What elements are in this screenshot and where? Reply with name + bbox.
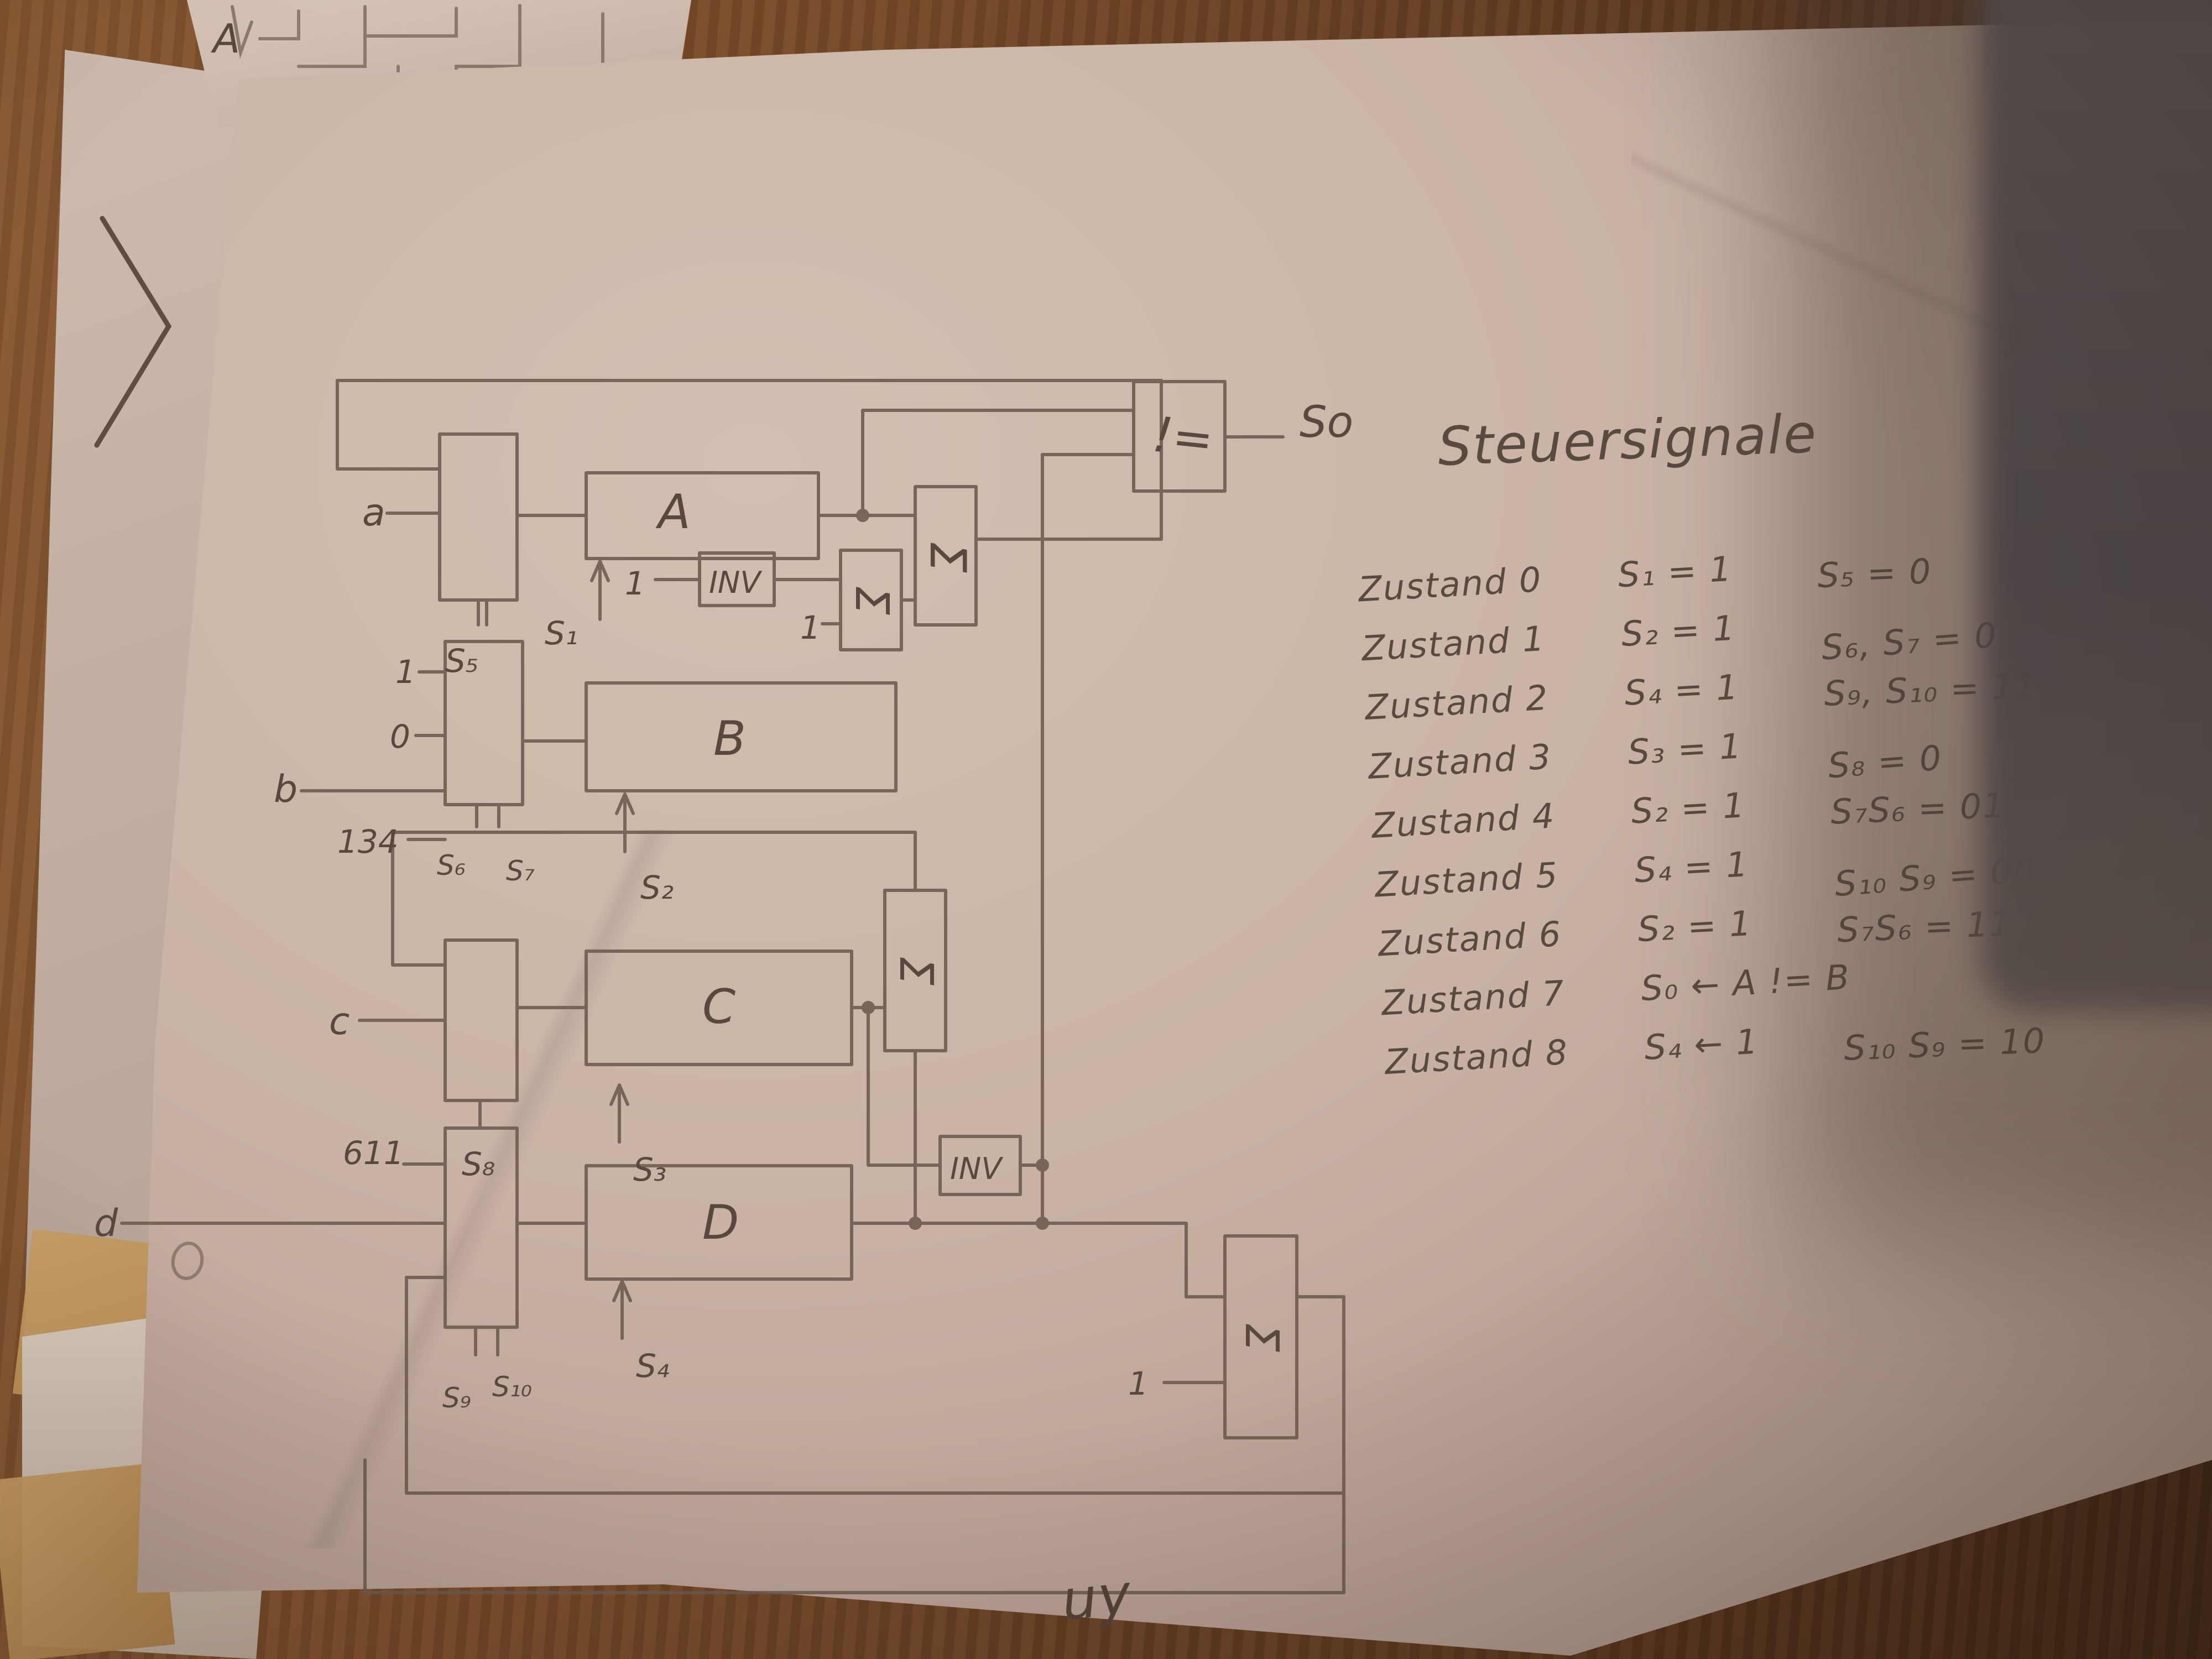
input-d-label: d	[94, 1202, 118, 1245]
wire-d-feedback-input	[406, 1277, 445, 1493]
select-s8-label: S₈	[462, 1145, 495, 1183]
wire-a-feedback-loop	[337, 380, 1161, 539]
wire-regd-out	[852, 1223, 1225, 1297]
constant-611-label: 611	[343, 1134, 404, 1172]
page-title: Steuersignale	[1437, 403, 1818, 478]
register-c-label: C	[702, 979, 735, 1035]
input-a-label: a	[362, 491, 385, 535]
adder-mid-sigma: Σ	[845, 586, 899, 615]
wire-a-to-comparator	[863, 410, 1134, 515]
mux-c-box	[445, 940, 517, 1100]
mux-b-select-ticks	[477, 805, 499, 827]
adder-bottom-sigma: Σ	[1235, 1323, 1289, 1352]
load-arrow-d	[614, 1281, 630, 1338]
bottom-edge-scribble: uy	[1058, 1562, 1135, 1634]
constant-1-label: 1	[800, 609, 821, 646]
inverter-2-label: INV	[950, 1151, 1004, 1186]
wire-to-inv2	[868, 1008, 940, 1165]
mux-d-input-wires	[122, 1164, 445, 1223]
constant-1-label: 1	[625, 565, 645, 602]
select-s10-label: S₁₀	[492, 1371, 532, 1403]
junction-dot	[910, 1218, 920, 1228]
register-a-label: A	[655, 484, 691, 540]
register-d-label: D	[702, 1195, 739, 1250]
mux-d-select-ticks	[476, 1327, 498, 1355]
adder-top-sigma: Σ	[919, 541, 977, 573]
load-s3-label: S₃	[633, 1151, 666, 1188]
constant-134-label: 134	[337, 823, 399, 860]
load-s2-label: S₂	[640, 869, 674, 906]
comparator-label: !=	[1150, 406, 1216, 469]
dark-object-shadow-top-right	[1980, 0, 2212, 1012]
junction-dot	[1037, 1218, 1047, 1228]
constant-1-label: 1	[395, 653, 416, 691]
load-arrow-c	[611, 1085, 628, 1142]
select-s9-label: S₉	[442, 1382, 471, 1414]
load-arrow-a	[592, 561, 608, 619]
junction-dot	[1037, 1160, 1047, 1170]
wire-outer-bottom-loop	[365, 1460, 1344, 1593]
inverter-1-label: INV	[709, 565, 763, 600]
photo-of-hand-drawn-schematic: A	[0, 0, 2212, 1659]
load-s1-label: S₁	[545, 614, 578, 652]
output-so-label: So	[1300, 398, 1353, 447]
mux-a-select-ticks	[478, 600, 487, 625]
register-a-box	[586, 473, 818, 559]
register-b-label: B	[713, 711, 746, 766]
select-s6-label: S₆	[437, 849, 466, 881]
mux-b-input-wires	[301, 672, 445, 839]
load-s4-label: S₄	[636, 1347, 669, 1385]
input-b-label: b	[274, 768, 298, 811]
datapath-schematic: a S₅ A S₁ 1 INV 1 Σ Σ != So 1 0 b 134 S₆…	[0, 0, 1493, 1659]
select-s7-label: S₇	[506, 855, 535, 887]
constant-1-label: 1	[1128, 1365, 1149, 1402]
mux-a-box	[440, 434, 517, 600]
select-s5-label: S₅	[445, 642, 478, 680]
load-arrow-b	[617, 794, 633, 852]
constant-0-label: 0	[390, 718, 410, 755]
adder-c-sigma: Σ	[889, 956, 943, 985]
wire-sigma-bottom-feedback	[406, 1297, 1344, 1493]
input-c-label: c	[329, 1000, 349, 1044]
